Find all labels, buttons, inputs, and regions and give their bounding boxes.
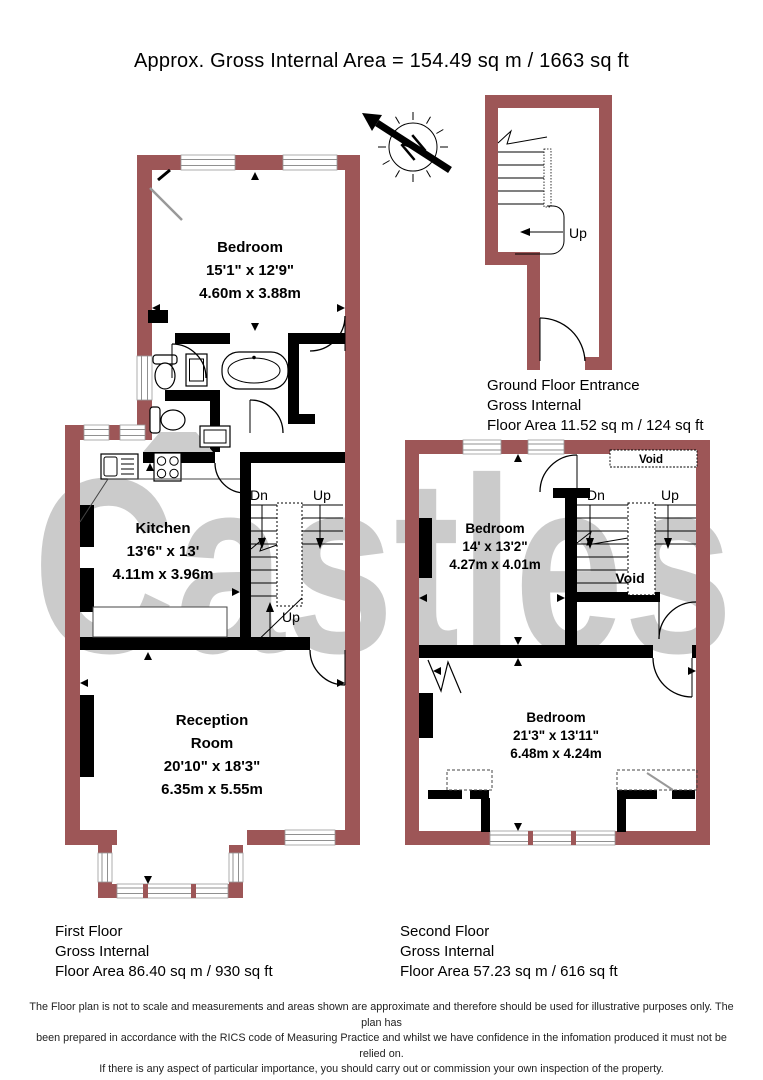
first-floor-caption: First Floor Gross Internal Floor Area 86… xyxy=(55,922,273,982)
gf-caption-line1: Ground Floor Entrance xyxy=(487,376,704,396)
eaves-storage-left xyxy=(447,770,492,790)
reception-metric: 6.35m x 5.55m xyxy=(161,781,263,798)
kitchen-imperial: 13'6" x 13' xyxy=(127,543,200,560)
ff-stairs-up: Up xyxy=(313,487,331,503)
disclaimer-line1: The Floor plan is not to scale and measu… xyxy=(22,1000,741,1031)
floorplan-drawing: Castles xyxy=(0,0,763,1080)
ff-bedroom-imperial: 15'1" x 12'9" xyxy=(206,262,294,279)
sf-stairs-dn: Dn xyxy=(587,487,605,503)
sf-caption-line1: Second Floor xyxy=(400,922,618,942)
entrance-door-leaf xyxy=(150,188,182,220)
ff-bedroom-name: Bedroom xyxy=(217,239,283,256)
ground-floor-caption: Ground Floor Entrance Gross Internal Flo… xyxy=(487,376,704,436)
sf-void-top: Void xyxy=(639,454,663,466)
page-title: Approx. Gross Internal Area = 154.49 sq … xyxy=(0,50,763,73)
sf-bedroom2-metric: 6.48m x 4.24m xyxy=(510,746,602,761)
sf-caption-line2: Gross Internal xyxy=(400,942,618,962)
eaves-door-leaf xyxy=(647,773,673,790)
kitchen-name: Kitchen xyxy=(135,520,190,537)
gf-caption-line3: Floor Area 11.52 sq m / 124 sq ft xyxy=(487,416,704,436)
sf-stairs-up: Up xyxy=(661,487,679,503)
ff-stairs-up-lower: Up xyxy=(282,609,300,625)
kitchen-metric: 4.11m x 3.96m xyxy=(113,566,214,583)
kitchen-sink-icon xyxy=(101,454,138,479)
gf-caption-line2: Gross Internal xyxy=(487,396,704,416)
toilet2-icon xyxy=(150,407,160,433)
sf-bedroom2-name: Bedroom xyxy=(526,710,585,725)
disclaimer-line3: If there is any aspect of particular imp… xyxy=(22,1062,741,1078)
ff-caption-line2: Gross Internal xyxy=(55,942,273,962)
reception-name2: Room xyxy=(191,735,234,752)
disclaimer: The Floor plan is not to scale and measu… xyxy=(22,1000,741,1078)
sf-void-stair: Void xyxy=(615,570,644,586)
ground-floor-stairs xyxy=(498,131,585,361)
north-arrow-icon: N xyxy=(362,112,450,182)
ff-caption-line1: First Floor xyxy=(55,922,273,942)
sf-bedroom2-imperial: 21'3" x 13'11" xyxy=(513,728,599,743)
stair-rail xyxy=(277,503,302,606)
second-floor-caption: Second Floor Gross Internal Floor Area 5… xyxy=(400,922,618,982)
sf-caption-line3: Floor Area 57.23 sq m / 616 sq ft xyxy=(400,962,618,982)
disclaimer-line2: been prepared in accordance with the RIC… xyxy=(22,1031,741,1062)
sf-bedroom1-imperial: 14' x 13'2" xyxy=(462,539,527,554)
kitchen-unit xyxy=(93,607,227,637)
sf-bedroom1-metric: 4.27m x 4.01m xyxy=(449,557,541,572)
reception-imperial: 20'10" x 18'3" xyxy=(164,758,260,775)
floorplan-page: Castles xyxy=(0,0,763,1080)
reception-name1: Reception xyxy=(176,712,249,729)
ff-stairs-dn: Dn xyxy=(250,487,268,503)
sf-bedroom1-name: Bedroom xyxy=(465,521,524,536)
ff-caption-line3: Floor Area 86.40 sq m / 930 sq ft xyxy=(55,962,273,982)
ff-bedroom-metric: 4.60m x 3.88m xyxy=(199,285,301,302)
gf-stairs-up: Up xyxy=(569,225,587,241)
